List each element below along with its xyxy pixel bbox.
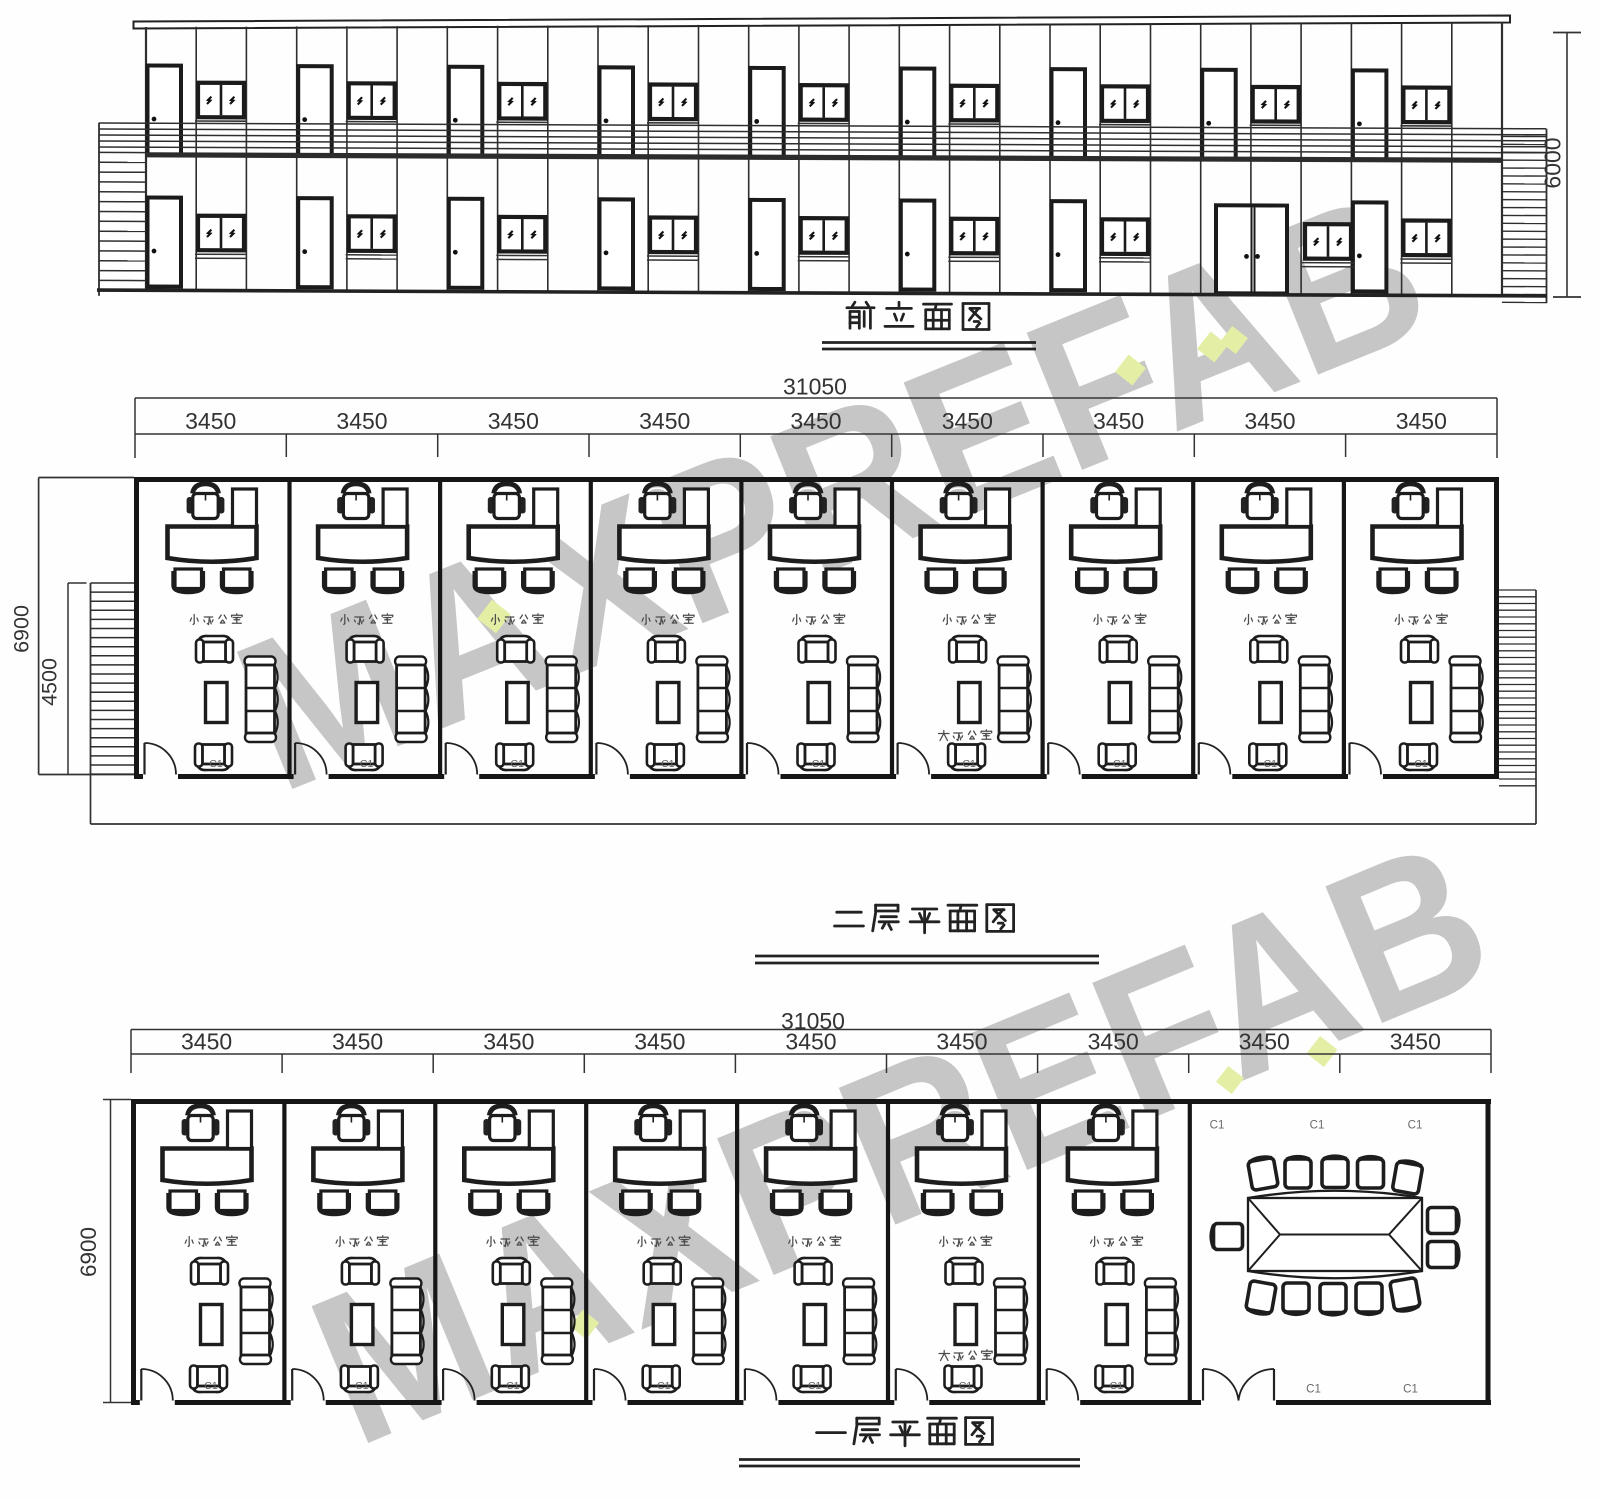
svg-text:3450: 3450	[1239, 1029, 1290, 1055]
svg-text:3450: 3450	[336, 408, 387, 434]
svg-text:3450: 3450	[639, 408, 690, 434]
svg-text:6900: 6900	[76, 1227, 101, 1277]
svg-text:3450: 3450	[942, 408, 993, 434]
svg-text:3450: 3450	[483, 1029, 534, 1055]
svg-text:C1: C1	[1306, 1384, 1321, 1396]
svg-text:3450: 3450	[634, 1029, 685, 1055]
svg-text:3450: 3450	[181, 1029, 232, 1055]
svg-text:3450: 3450	[1390, 1029, 1441, 1055]
svg-text:C1: C1	[1310, 1120, 1325, 1132]
svg-text:3450: 3450	[1396, 408, 1447, 434]
svg-text:4500: 4500	[38, 658, 62, 706]
svg-text:C1: C1	[1403, 1384, 1418, 1396]
svg-text:3450: 3450	[488, 408, 539, 434]
svg-text:31050: 31050	[783, 374, 847, 400]
svg-text:C1: C1	[1408, 1120, 1423, 1132]
svg-text:6900: 6900	[10, 605, 34, 653]
svg-text:3450: 3450	[185, 408, 236, 434]
svg-text:3450: 3450	[1244, 408, 1295, 434]
svg-text:3450: 3450	[785, 1029, 836, 1055]
svg-text:3450: 3450	[790, 408, 841, 434]
svg-text:6000: 6000	[1540, 137, 1566, 188]
svg-text:3450: 3450	[1088, 1029, 1139, 1055]
svg-text:3450: 3450	[936, 1029, 987, 1055]
svg-text:C1: C1	[1210, 1120, 1225, 1132]
svg-text:3450: 3450	[332, 1029, 383, 1055]
svg-text:3450: 3450	[1093, 408, 1144, 434]
